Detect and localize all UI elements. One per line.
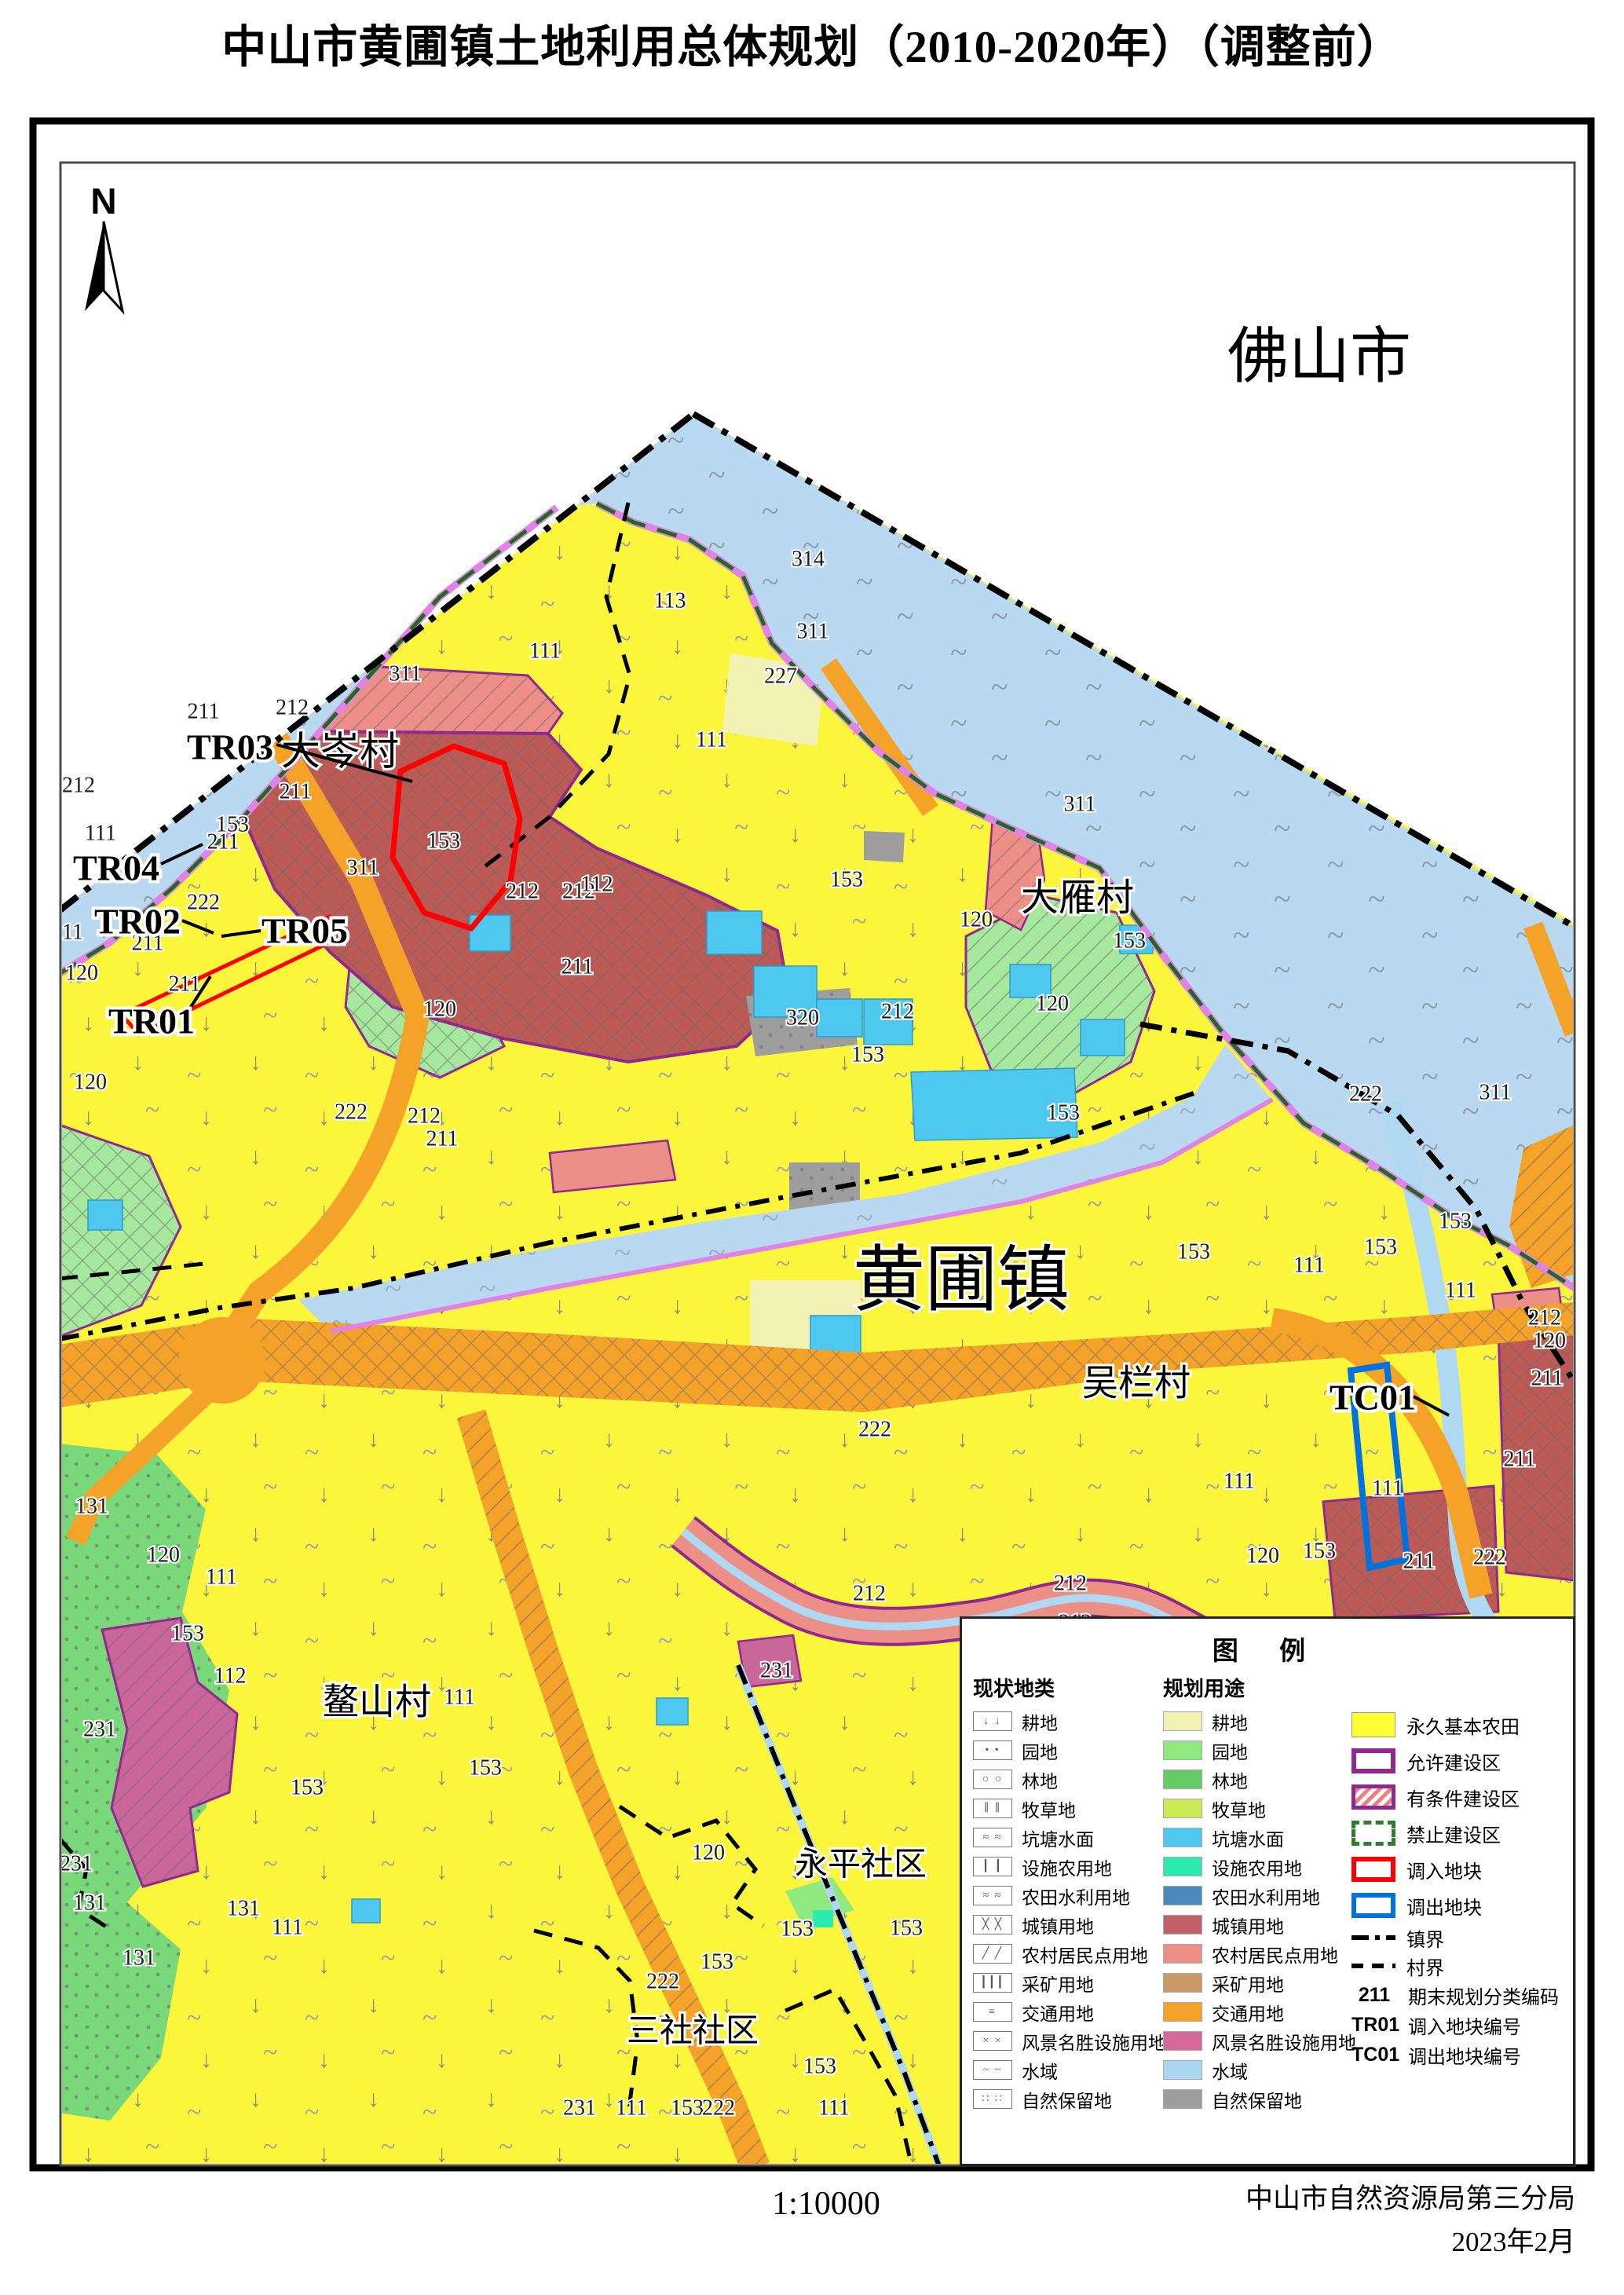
land-code-label: 153 — [890, 1916, 923, 1940]
land-code-label: 153 — [1047, 1100, 1080, 1125]
land-code-label: 212 — [276, 695, 309, 719]
land-code-label: 311 — [1064, 792, 1096, 816]
legend-color-swatch — [1163, 2031, 1202, 2051]
legend-label: 农村居民点用地 — [1212, 1941, 1338, 1967]
land-code-label: 153 — [1303, 1539, 1336, 1563]
legend-zone-label: 镇界 — [1406, 1924, 1444, 1952]
land-code-label: 211 — [169, 972, 201, 996]
land-code-label: 153 — [851, 1042, 884, 1067]
north-label: N — [90, 181, 116, 221]
land-code-label: 311 — [390, 661, 422, 686]
land-code-label: 120 — [423, 997, 456, 1021]
legend-row-current: ≈ ≈坑塘水面 — [973, 1823, 1163, 1852]
legend-zone-swatch — [1352, 1935, 1395, 1940]
legend-color-swatch — [1163, 1915, 1202, 1934]
legend-row-current: ≡交通用地 — [973, 1997, 1163, 2026]
legend-col-planned: 耕地园地林地牧草地坑塘水面设施农用地农田水利用地城镇用地农村居民点用地采矿用地交… — [1163, 1707, 1352, 2114]
legend-zone-label: 永久基本农田 — [1406, 1711, 1520, 1739]
legend-pattern-swatch: ╱ ╱ — [973, 1944, 1012, 1964]
legend-row-current: ┃┃┃采矿用地 — [973, 1968, 1163, 1997]
legend-color-swatch — [1163, 1944, 1202, 1964]
legend-zone-row: 调出地块 — [1352, 1887, 1565, 1923]
land-code-label: 112 — [581, 872, 613, 896]
land-code-label: 120 — [1246, 1543, 1279, 1568]
land-code-label: 111 — [52, 920, 83, 944]
legend-zone-label: 调入地块 — [1406, 1856, 1482, 1883]
land-code-label: 211 — [188, 699, 220, 723]
scale-text: 1:10000 — [669, 2185, 983, 2223]
legend-zone-row: 211期末规划分类编码 — [1352, 1980, 1565, 2010]
land-code-label: 211 — [1531, 1366, 1564, 1390]
land-code-label: 231 — [83, 1717, 116, 1741]
place-name-label: 鳌山村 — [323, 1682, 431, 1722]
land-code-label: 111 — [1372, 1476, 1403, 1500]
land-code-label: 212 — [62, 773, 95, 797]
land-code-label: 311 — [347, 855, 379, 880]
legend-row-planned: 交通用地 — [1163, 1997, 1352, 2026]
parcel-id-label: TC01 — [1330, 1378, 1416, 1418]
legend-pattern-swatch: × × — [973, 2031, 1012, 2051]
parcel-id-label: TR01 — [108, 1001, 195, 1041]
legend-row-planned: 风景名胜设施用地 — [1163, 2026, 1352, 2055]
land-code-label: 222 — [702, 2096, 735, 2120]
legend-label: 园地 — [1212, 1737, 1248, 1764]
land-code-label: 212 — [1054, 1571, 1087, 1595]
land-code-label: 231 — [60, 1851, 93, 1876]
legend-color-swatch — [1163, 1973, 1202, 1993]
parcel-id-label: TR04 — [73, 848, 159, 888]
legend-label: 自然保留地 — [1022, 2086, 1112, 2113]
land-code-label: 222 — [646, 1969, 679, 1993]
legend-pattern-swatch: ~ ~ — [973, 2060, 1012, 2080]
legend-zone-row: 禁止建设区 — [1352, 1815, 1565, 1851]
legend-label: 林地 — [1022, 1766, 1058, 1793]
legend-label: 林地 — [1212, 1766, 1248, 1793]
land-code-label: 311 — [1480, 1080, 1512, 1104]
land-code-label: 113 — [654, 588, 686, 613]
land-code-label: 111 — [444, 1685, 475, 1709]
legend-row-planned: 坑塘水面 — [1163, 1823, 1352, 1852]
legend-col-current-header: 现状地类 — [973, 1672, 1163, 1707]
place-name-label: 吴栏村 — [1082, 1363, 1191, 1404]
parcel-id-label: TR02 — [94, 902, 181, 942]
legend-label: 坑塘水面 — [1022, 1825, 1094, 1851]
land-code-label: 222 — [335, 1100, 368, 1124]
land-code-label: 212 — [408, 1104, 441, 1128]
land-code-label: 311 — [797, 619, 829, 643]
land-code-label: 153 — [469, 1755, 502, 1780]
legend-zone-label: 允许建设区 — [1406, 1748, 1501, 1775]
land-code-label: 211 — [561, 954, 594, 979]
land-code-label: 111 — [616, 2096, 647, 2120]
legend-label: 自然保留地 — [1212, 2086, 1302, 2113]
legend-zone-swatch — [1352, 1893, 1395, 1918]
legend-label: 牧草地 — [1212, 1795, 1266, 1822]
land-code-label: 212 — [881, 999, 914, 1023]
legend-label: 采矿用地 — [1212, 1970, 1284, 1997]
legend-label: 水域 — [1212, 2057, 1248, 2084]
land-code-label: 131 — [227, 1896, 260, 1920]
legend-color-swatch — [1163, 1770, 1202, 1789]
legend-row-current: • •园地 — [973, 1736, 1163, 1765]
legend-color-swatch — [1163, 2089, 1202, 2109]
legend-zone-label: 调出地块 — [1406, 1892, 1482, 1920]
land-code-label: 212 — [853, 1581, 886, 1605]
legend-label: 农田水利用地 — [1022, 1883, 1130, 1909]
land-code-label: 120 — [147, 1543, 180, 1567]
legend-label: 风景名胜设施用地 — [1212, 2028, 1356, 2055]
legend-row-planned: 牧草地 — [1163, 1794, 1352, 1823]
legend-zone-row: 村界 — [1352, 1952, 1565, 1980]
legend: 图 例 现状地类 ↓ ↓耕地• •园地○ ○林地∥ ∥牧草地≈ ≈坑塘水面┃ ┃… — [960, 1616, 1575, 2166]
legend-row-current: ○ ○林地 — [973, 1765, 1163, 1794]
legend-zone-swatch: TR01 — [1352, 2014, 1397, 2037]
legend-row-planned: 水域 — [1163, 2055, 1352, 2085]
legend-row-current: ╱ ╱农村居民点用地 — [973, 1939, 1163, 1968]
legend-col-planned-header: 规划用途 — [1163, 1672, 1352, 1707]
legend-col-zones: 永久基本农田允许建设区有条件建设区禁止建设区调入地块调出地块镇界村界211期末规… — [1352, 1707, 1565, 2070]
legend-zone-row: 调入地块 — [1352, 1851, 1565, 1887]
land-code-label: 231 — [760, 1658, 793, 1682]
legend-label: 水域 — [1022, 2057, 1058, 2084]
legend-zone-row: 允许建设区 — [1352, 1743, 1565, 1779]
land-code-label: 211 — [426, 1126, 459, 1151]
legend-zone-row: 镇界 — [1352, 1923, 1565, 1952]
legend-zone-label: 期末规划分类编码 — [1408, 1982, 1559, 2009]
legend-pattern-swatch: ╳ ╳ — [973, 1915, 1012, 1934]
legend-label: 农村居民点用地 — [1022, 1941, 1148, 1967]
land-code-label: 111 — [1223, 1469, 1255, 1493]
land-code-label: 222 — [1473, 1545, 1506, 1569]
attribution-agency: 中山市自然资源局第三分局 — [1245, 2177, 1575, 2220]
legend-row-current: ∥ ∥牧草地 — [973, 1794, 1163, 1823]
land-code-label: 111 — [696, 727, 727, 752]
legend-zone-swatch: 211 — [1352, 1984, 1397, 2007]
legend-zone-row: TC01调出地块编号 — [1352, 2040, 1565, 2070]
legend-zone-swatch: TC01 — [1352, 2044, 1397, 2066]
legend-label: 牧草地 — [1022, 1795, 1076, 1822]
land-code-label: 153 — [1364, 1235, 1397, 1259]
legend-zone-swatch — [1352, 1964, 1395, 1968]
land-code-label: 222 — [187, 890, 220, 914]
land-code-label: 212 — [506, 879, 539, 903]
legend-pattern-swatch: ↓ ↓ — [973, 1711, 1012, 1731]
legend-zone-swatch — [1352, 1821, 1395, 1846]
land-code-label: 120 — [65, 961, 98, 985]
legend-row-planned: 城镇用地 — [1163, 1910, 1352, 1939]
land-code-label: 120 — [692, 1840, 725, 1865]
land-code-label: 153 — [1439, 1209, 1472, 1233]
land-code-label: 153 — [671, 2096, 704, 2120]
legend-pattern-swatch: ≡ — [973, 2002, 1012, 2022]
legend-row-planned: 林地 — [1163, 1765, 1352, 1794]
land-code-label: 153 — [830, 867, 863, 891]
place-name-label: 三社社区 — [627, 2014, 759, 2050]
legend-row-planned: 采矿用地 — [1163, 1968, 1352, 1997]
legend-label: 园地 — [1022, 1737, 1058, 1764]
legend-pattern-swatch: ┃ ┃ — [973, 1857, 1012, 1876]
land-code-label: 120 — [1036, 991, 1069, 1016]
legend-pattern-swatch: ┃┃┃ — [973, 1973, 1012, 1993]
legend-zone-row: 永久基本农田 — [1352, 1707, 1565, 1743]
legend-zone-row: 有条件建设区 — [1352, 1779, 1565, 1815]
land-code-label: 111 — [206, 1565, 237, 1589]
legend-label: 耕地 — [1022, 1708, 1058, 1735]
land-code-label: 120 — [1533, 1328, 1566, 1352]
legend-color-swatch — [1163, 2060, 1202, 2080]
land-code-label: 211 — [1504, 1447, 1536, 1471]
legend-row-planned: 农村居民点用地 — [1163, 1939, 1352, 1968]
legend-color-swatch — [1163, 1711, 1202, 1731]
land-code-label: 111 — [85, 821, 116, 845]
land-code-label: 231 — [563, 2096, 596, 2120]
land-code-label: 111 — [818, 2096, 850, 2120]
legend-label: 农田水利用地 — [1212, 1883, 1320, 1909]
legend-label: 坑塘水面 — [1212, 1825, 1284, 1851]
legend-zone-label: 村界 — [1406, 1953, 1444, 1980]
land-code-label: 131 — [75, 1494, 108, 1518]
land-code-label: 120 — [960, 907, 993, 932]
legend-row-current: ╳ ╳城镇用地 — [973, 1910, 1163, 1939]
legend-color-swatch — [1163, 1799, 1202, 1818]
legend-label: 交通用地 — [1212, 1999, 1284, 2026]
land-code-label: 211 — [280, 779, 312, 803]
legend-pattern-swatch: • • — [973, 1740, 1012, 1760]
legend-row-current: ≈ ≈农田水利用地 — [973, 1881, 1163, 1910]
legend-zone-row: TR01调入地块编号 — [1352, 2010, 1565, 2040]
legend-label: 设施农用地 — [1022, 1854, 1112, 1880]
parcel-id-label: TR03 — [187, 727, 273, 767]
land-code-label: 222 — [858, 1417, 891, 1441]
land-code-label: 120 — [74, 1070, 107, 1094]
land-code-label: 153 — [700, 1949, 733, 1974]
legend-color-swatch — [1163, 1828, 1202, 1847]
place-name-label: 永平社区 — [795, 1847, 927, 1883]
place-name-label: 佛山市 — [1227, 322, 1411, 390]
land-code-label: 211 — [1403, 1549, 1436, 1573]
legend-color-swatch — [1163, 1740, 1202, 1760]
legend-row-current: × ×风景名胜设施用地 — [973, 2026, 1163, 2055]
legend-title: 图 例 — [962, 1630, 1573, 1667]
land-code-label: 153 — [781, 1916, 814, 1941]
land-code-label: 153 — [1177, 1239, 1210, 1264]
legend-row-planned: 园地 — [1163, 1736, 1352, 1765]
legend-row-current: ┃ ┃设施农用地 — [973, 1852, 1163, 1881]
land-code-label: 320 — [786, 1005, 819, 1030]
land-code-label: 153 — [171, 1621, 204, 1645]
land-code-label: 314 — [792, 547, 825, 571]
land-code-label: 111 — [272, 1915, 303, 1939]
legend-col-current: ↓ ↓耕地• •园地○ ○林地∥ ∥牧草地≈ ≈坑塘水面┃ ┃设施农用地≈ ≈农… — [973, 1707, 1163, 2114]
legend-row-current: ∷ ∷自然保留地 — [973, 2085, 1163, 2114]
legend-zone-swatch — [1352, 1857, 1395, 1882]
land-code-label: 153 — [216, 812, 249, 836]
legend-label: 交通用地 — [1022, 1999, 1094, 2026]
legend-row-planned: 自然保留地 — [1163, 2085, 1352, 2114]
legend-color-swatch — [1163, 2002, 1202, 2022]
legend-pattern-swatch: ○ ○ — [973, 1770, 1012, 1789]
legend-zone-label: 禁止建设区 — [1406, 1820, 1501, 1847]
land-code-label: 131 — [73, 1891, 106, 1915]
land-code-label: 111 — [529, 639, 561, 663]
place-name-label: 大雁村 — [1021, 877, 1134, 919]
land-code-label: 222 — [1349, 1082, 1382, 1106]
legend-zone-swatch — [1352, 1712, 1395, 1737]
land-code-label: 111 — [1293, 1253, 1325, 1277]
parcel-id-label: TR05 — [262, 911, 348, 951]
legend-color-swatch — [1163, 1857, 1202, 1876]
legend-row-current: ↓ ↓耕地 — [973, 1707, 1163, 1736]
land-code-label: 153 — [1113, 928, 1146, 953]
legend-color-swatch — [1163, 1886, 1202, 1905]
legend-pattern-swatch: ≈ ≈ — [973, 1828, 1012, 1847]
legend-pattern-swatch: ∥ ∥ — [973, 1799, 1012, 1818]
legend-zone-label: 调出地块编号 — [1408, 2041, 1521, 2069]
attribution-date: 2023年2月 — [1245, 2220, 1575, 2264]
legend-zone-label: 调入地块编号 — [1408, 2011, 1521, 2039]
place-name-label: 黄圃镇 — [853, 1240, 1070, 1320]
land-code-label: 212 — [1528, 1305, 1561, 1330]
legend-label: 城镇用地 — [1212, 1912, 1284, 1938]
attribution: 中山市自然资源局第三分局 2023年2月 — [1245, 2177, 1575, 2264]
land-code-label: 153 — [427, 829, 460, 853]
land-code-label: 153 — [803, 2054, 836, 2078]
land-code-label: 111 — [1445, 1278, 1476, 1302]
legend-label: 采矿用地 — [1022, 1970, 1094, 1997]
legend-zone-swatch — [1352, 1784, 1395, 1810]
land-code-label: 153 — [291, 1775, 324, 1799]
legend-row-planned: 农田水利用地 — [1163, 1881, 1352, 1910]
legend-zone-swatch — [1352, 1748, 1395, 1773]
legend-label: 耕地 — [1212, 1708, 1248, 1735]
legend-row-planned: 耕地 — [1163, 1707, 1352, 1736]
legend-row-planned: 设施农用地 — [1163, 1852, 1352, 1881]
legend-row-current: ~ ~水域 — [973, 2055, 1163, 2085]
legend-label: 城镇用地 — [1022, 1912, 1094, 1938]
planning-map-sheet: 中山市黄圃镇土地利用总体规划（2010-2020年）（调整前） ↓ ~ ↓ ~ … — [0, 0, 1624, 2295]
legend-label: 风景名胜设施用地 — [1022, 2028, 1166, 2055]
legend-pattern-swatch: ∷ ∷ — [973, 2089, 1012, 2109]
land-code-label: 227 — [764, 664, 797, 688]
land-code-label: 112 — [214, 1664, 247, 1688]
legend-label: 设施农用地 — [1212, 1854, 1302, 1880]
land-code-label: 131 — [123, 1945, 155, 1970]
legend-pattern-swatch: ≈ ≈ — [973, 1886, 1012, 1905]
legend-zone-label: 有条件建设区 — [1406, 1784, 1520, 1811]
